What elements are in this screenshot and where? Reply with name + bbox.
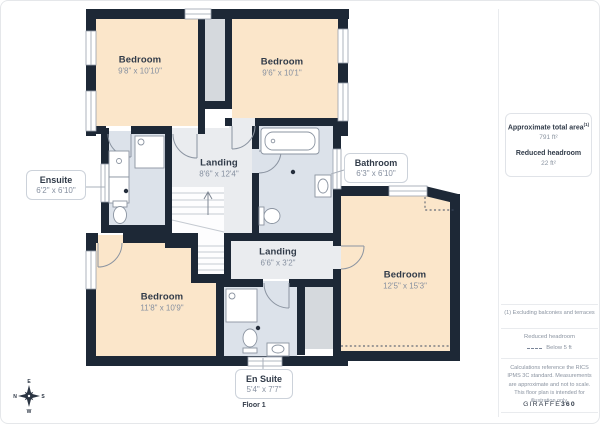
room-label-landing-main: Landing 8'6" x 12'4" — [199, 158, 238, 179]
room-name: Bedroom — [261, 57, 303, 68]
sink-symbol — [315, 175, 331, 197]
legend-row: Below 5 ft — [498, 345, 600, 351]
callout-ensuite: Ensuite 6'2" x 6'10" — [26, 170, 86, 200]
shower-symbol — [226, 289, 257, 322]
room-name: Landing — [259, 247, 297, 258]
toilet-symbol — [243, 329, 257, 353]
room-dimensions: 12'5" x 15'3" — [383, 282, 427, 291]
room-label-landing-small: Landing 6'6" x 3'2" — [259, 247, 297, 268]
compass-north-label: N — [13, 394, 17, 400]
dashed-line-icon — [527, 348, 542, 349]
total-area-label: Approximate total area(1) — [507, 122, 590, 131]
room-dimensions: 9'6" x 10'1" — [261, 69, 303, 78]
brand-logo: GIRAFFE360 — [498, 401, 600, 408]
floor-label: Floor 1 — [204, 402, 304, 409]
shower-symbol — [135, 136, 164, 168]
floorplan-page: E S W N Bedroom 9'8" x 10'10" Bedroom 9'… — [0, 0, 600, 424]
total-area-label-text: Approximate total area — [508, 124, 584, 131]
total-area-footnote-marker: (1) — [584, 122, 590, 127]
reduced-headroom-value: 22 ft² — [507, 160, 590, 167]
compass-east-label: E — [27, 379, 31, 385]
vanity-symbol — [109, 151, 129, 203]
callout-name: Bathroom — [348, 158, 404, 168]
room-dimensions: 8'6" x 12'4" — [199, 170, 238, 179]
brand-name: GIRAFFE — [523, 401, 561, 408]
sink-symbol — [267, 343, 289, 356]
room-label-bedroom-bottom-left: Bedroom 11'8" x 10'9" — [140, 292, 183, 313]
room-label-bedroom-top-right: Bedroom 9'6" x 10'1" — [261, 57, 303, 78]
room-dimensions: 11'8" x 10'9" — [140, 304, 183, 313]
disclaimer-text: Calculations reference the RICS IPMS 3C … — [504, 364, 595, 405]
sidebar: Approximate total area(1) 791 ft² Reduce… — [498, 1, 600, 424]
toilet-symbol — [113, 201, 127, 224]
callout-name: En Suite — [239, 374, 289, 384]
compass-south-label: S — [41, 394, 45, 400]
sidebar-divider — [501, 412, 598, 413]
room-dimensions: 6'6" x 3'2" — [259, 259, 297, 268]
callout-dimensions: 6'2" x 6'10" — [30, 186, 82, 195]
callout-bathroom: Bathroom 6'3" x 6'10" — [344, 153, 408, 183]
room-name: Landing — [199, 158, 238, 169]
callout-dimensions: 5'4" x 7'7" — [239, 385, 289, 394]
callout-en-suite: En Suite 5'4" x 7'7" — [235, 369, 293, 399]
room-label-bedroom-top-left: Bedroom 9'8" x 10'10" — [118, 55, 162, 76]
sidebar-vertical-divider — [498, 9, 499, 417]
room-dimensions: 9'8" x 10'10" — [118, 67, 162, 76]
bathtub-symbol — [261, 128, 319, 154]
legend-value: Below 5 ft — [546, 345, 571, 351]
area-summary-box: Approximate total area(1) 791 ft² Reduce… — [505, 113, 592, 177]
sidebar-divider — [501, 304, 598, 305]
callout-dimensions: 6'3" x 6'10" — [348, 169, 404, 178]
sidebar-divider — [501, 328, 598, 329]
room-label-bedroom-bottom-right: Bedroom 12'5" x 15'3" — [383, 270, 427, 291]
total-area-value: 791 ft² — [507, 134, 590, 141]
reduced-headroom-label: Reduced headroom — [507, 150, 590, 157]
compass-west-label: W — [27, 409, 32, 415]
room-name: Bedroom — [118, 55, 162, 66]
legend-title: Reduced headroom — [498, 334, 600, 340]
room-name: Bedroom — [383, 270, 427, 281]
toilet-symbol — [259, 207, 280, 225]
brand-number: 360 — [561, 401, 576, 408]
sidebar-divider — [501, 358, 598, 359]
callout-name: Ensuite — [30, 175, 82, 185]
footnote: (1) Excluding balconies and terraces — [498, 310, 600, 316]
room-name: Bedroom — [140, 292, 183, 303]
compass-rose-icon: E S W N — [13, 379, 45, 415]
